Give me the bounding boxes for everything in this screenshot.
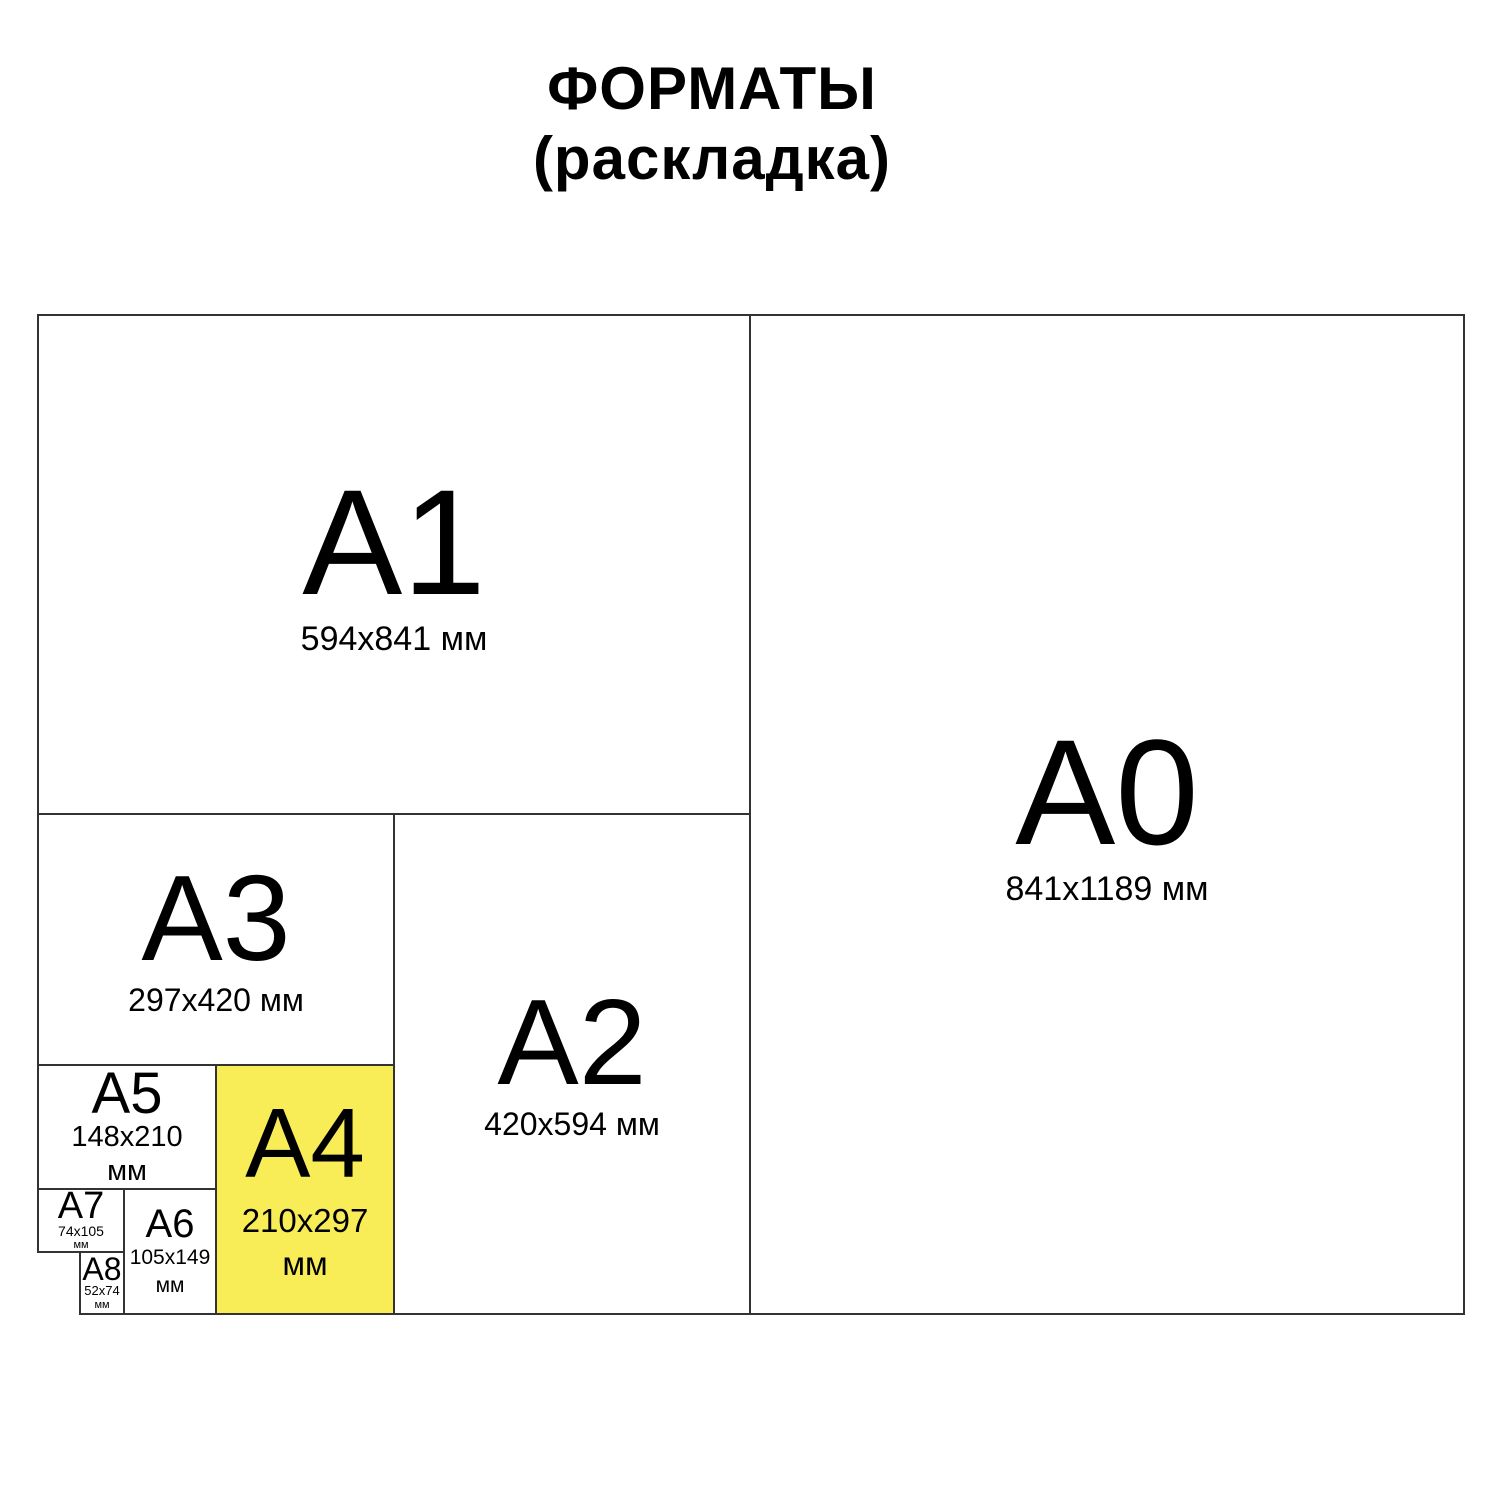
format-dims-a1: 594x841 мм [301,617,488,663]
format-box-a5: A5 148x210 мм [37,1064,217,1190]
format-box-a3: A3 297x420 мм [37,813,395,1066]
format-dims-a6: 105x149 [130,1244,211,1271]
format-dims-unit-a4: мм [282,1243,327,1286]
format-dims-a8: 52x74 [84,1284,119,1299]
format-label-a4: A4 [245,1094,365,1192]
format-dims-unit-a6: мм [156,1272,185,1299]
format-dims-unit-a5: мм [107,1155,147,1188]
format-label-a7: A7 [58,1189,104,1223]
format-label-a8: A8 [82,1255,121,1284]
diagram-title-line2: (раскладка) [0,124,1424,194]
format-box-a7: A7 74x105 мм [37,1188,125,1253]
diagram-title-line1: ФОРМАТЫ [0,54,1424,124]
format-label-a6: A6 [146,1204,195,1244]
format-box-a8: A8 52x74 мм [79,1251,125,1315]
format-label-a0: A0 [1015,717,1198,867]
format-dims-a5: 148x210 [71,1121,182,1154]
format-dims-a3: 297x420 мм [128,979,304,1022]
format-dims-a2: 420x594 мм [484,1103,660,1146]
format-dims-a7: 74x105 [58,1223,104,1239]
format-label-a5: A5 [92,1066,163,1121]
format-label-a3: A3 [141,857,290,979]
format-box-a1: A1 594x841 мм [37,314,751,815]
format-label-a2: A2 [497,981,646,1103]
format-dims-unit-a8: мм [94,1299,109,1312]
format-box-a0: A0 841x1189 мм [749,314,1465,1315]
format-box-a4-highlighted: A4 210x297 мм [215,1064,395,1315]
format-dims-a4: 210x297 [242,1200,369,1243]
format-label-a1: A1 [302,467,485,617]
format-box-a6: A6 105x149 мм [123,1188,217,1315]
paper-formats-diagram: ФОРМАТЫ (раскладка) A1 594x841 мм A0 841… [0,0,1500,1500]
format-dims-a0: 841x1189 мм [1005,867,1208,913]
format-box-a2: A2 420x594 мм [393,813,751,1315]
diagram-title: ФОРМАТЫ (раскладка) [0,54,1424,194]
